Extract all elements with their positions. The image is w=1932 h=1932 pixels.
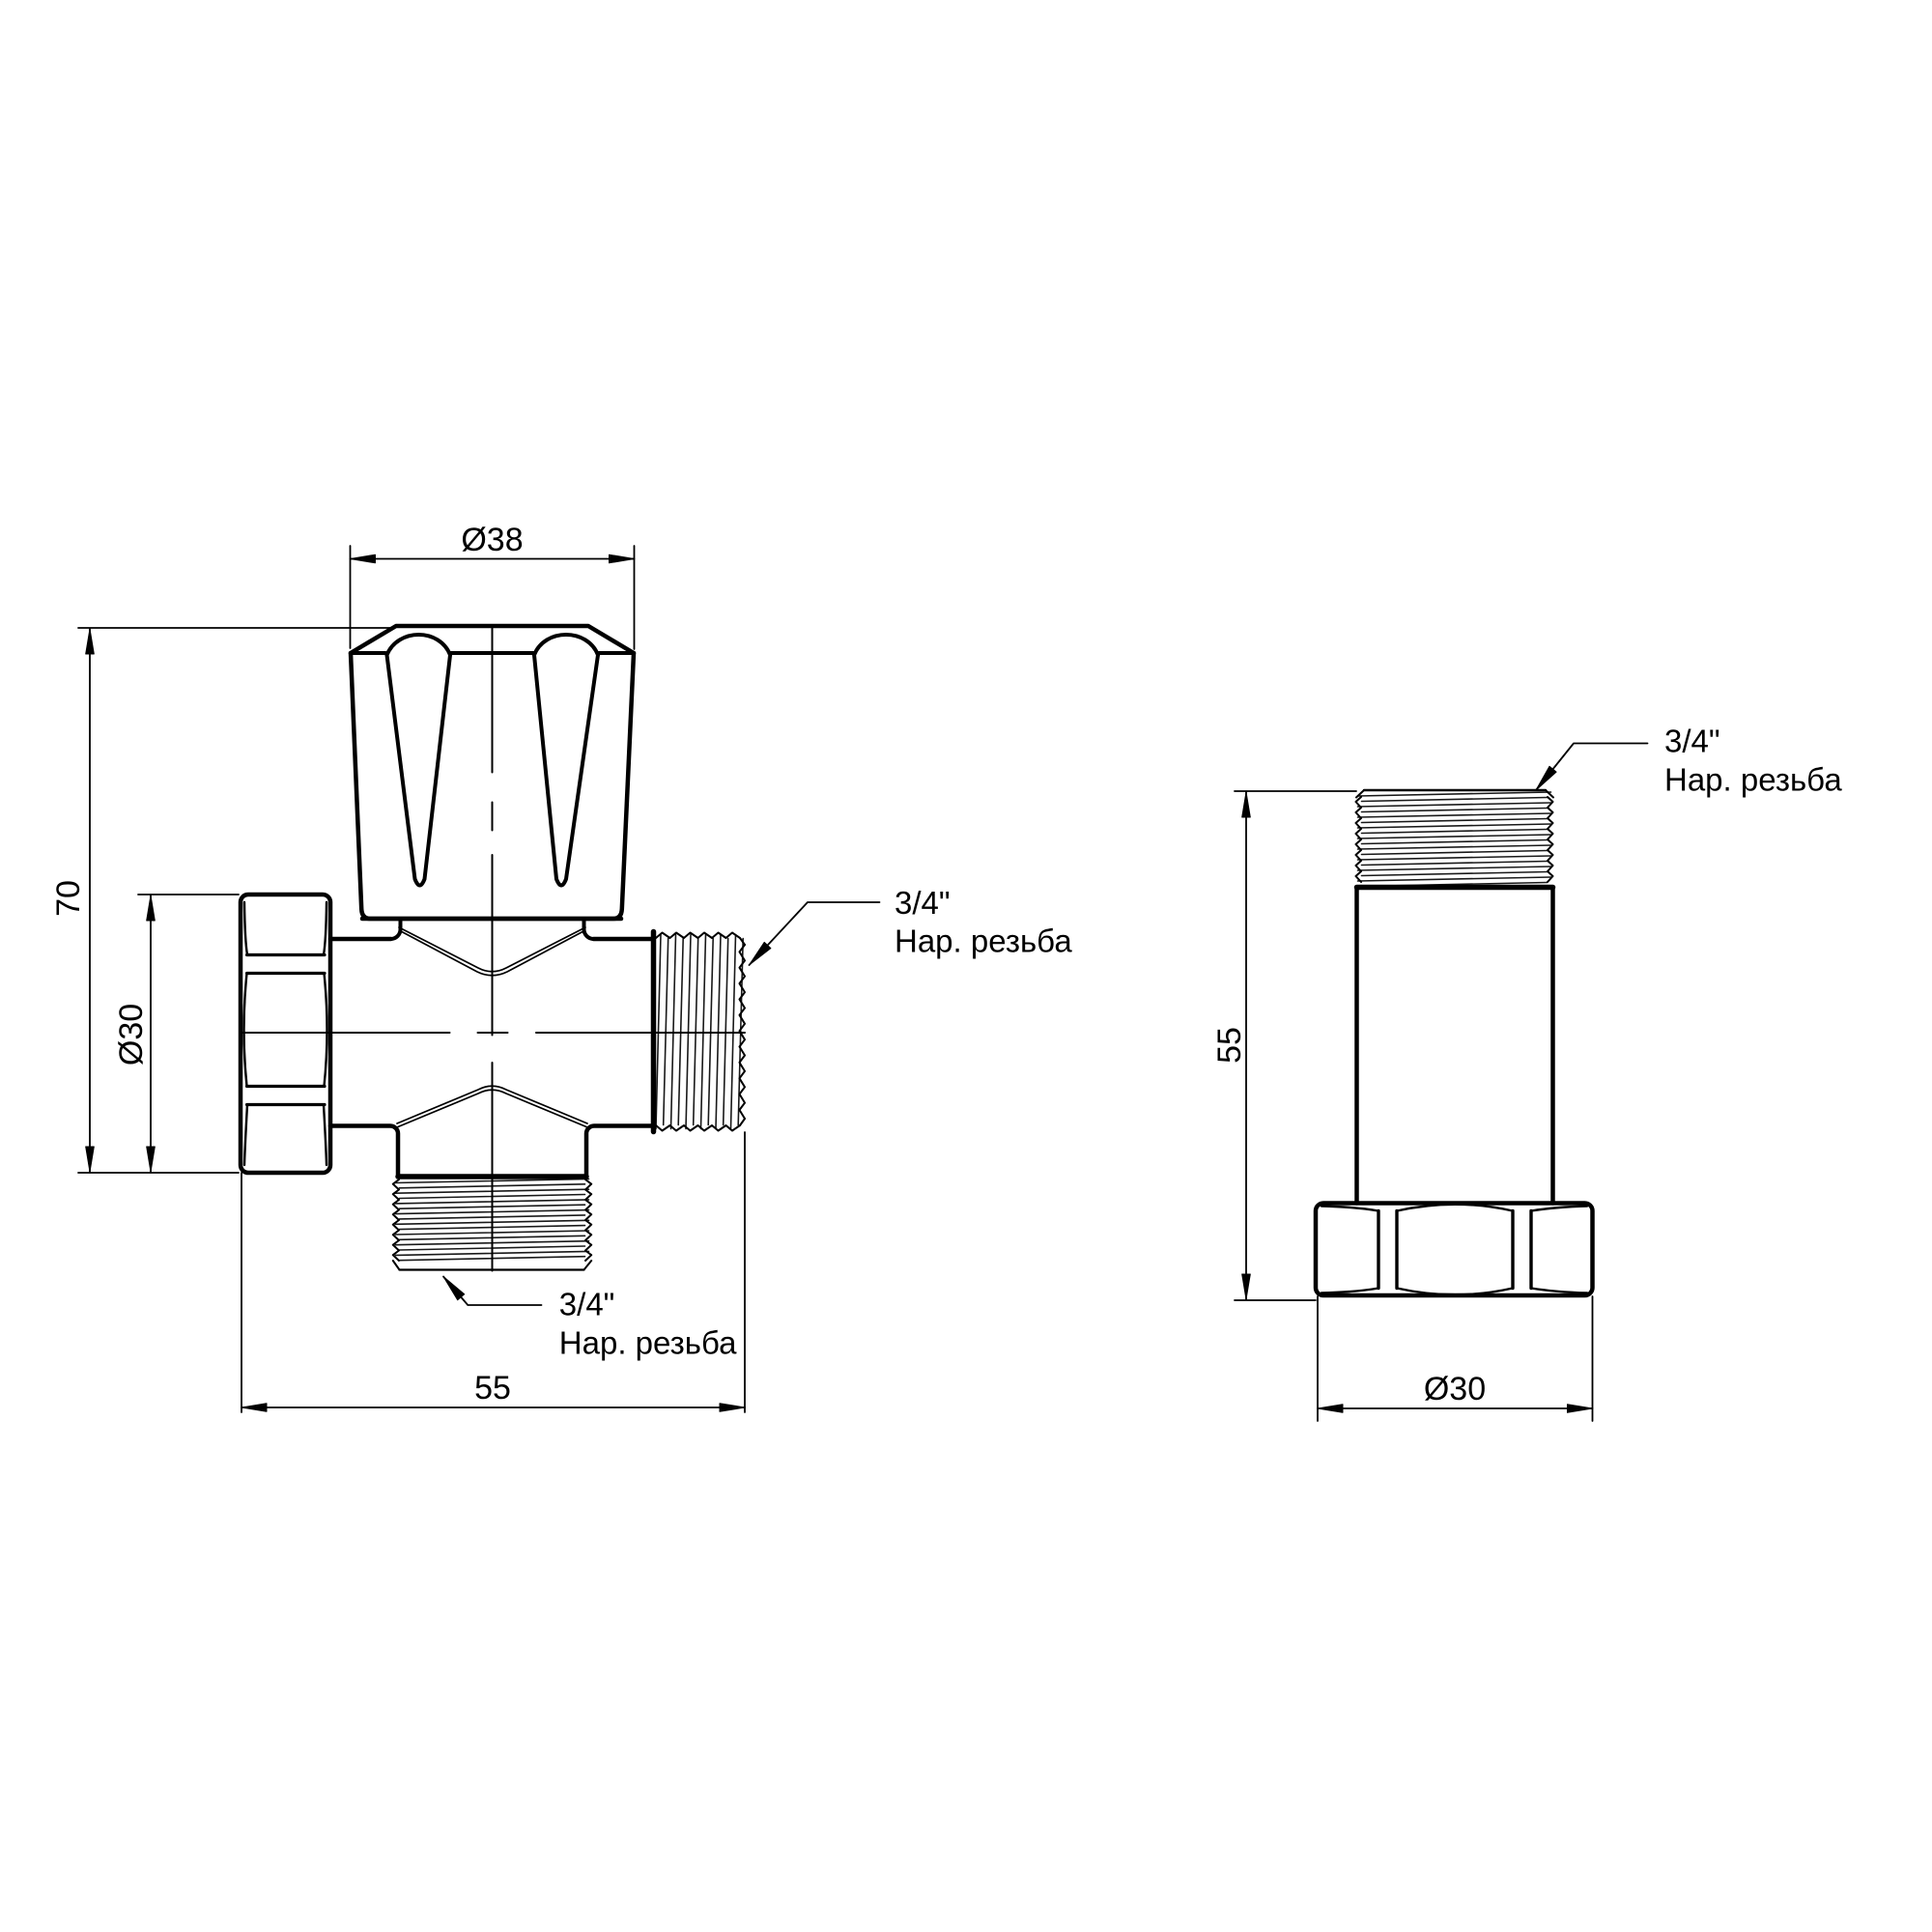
svg-text:Ø30: Ø30 xyxy=(113,1004,150,1065)
svg-text:3/4": 3/4" xyxy=(1664,724,1720,759)
svg-text:70: 70 xyxy=(50,880,87,917)
svg-text:Ø38: Ø38 xyxy=(461,522,523,558)
svg-text:Нар. резьба: Нар. резьба xyxy=(895,923,1072,959)
svg-text:55: 55 xyxy=(474,1370,511,1406)
svg-text:3/4": 3/4" xyxy=(895,885,951,921)
svg-text:55: 55 xyxy=(1211,1027,1248,1064)
svg-text:Нар. резьба: Нар. резьба xyxy=(1664,761,1842,797)
svg-text:3/4": 3/4" xyxy=(559,1287,615,1322)
svg-text:Нар. резьба: Нар. резьба xyxy=(559,1325,737,1361)
svg-text:Ø30: Ø30 xyxy=(1424,1371,1486,1407)
